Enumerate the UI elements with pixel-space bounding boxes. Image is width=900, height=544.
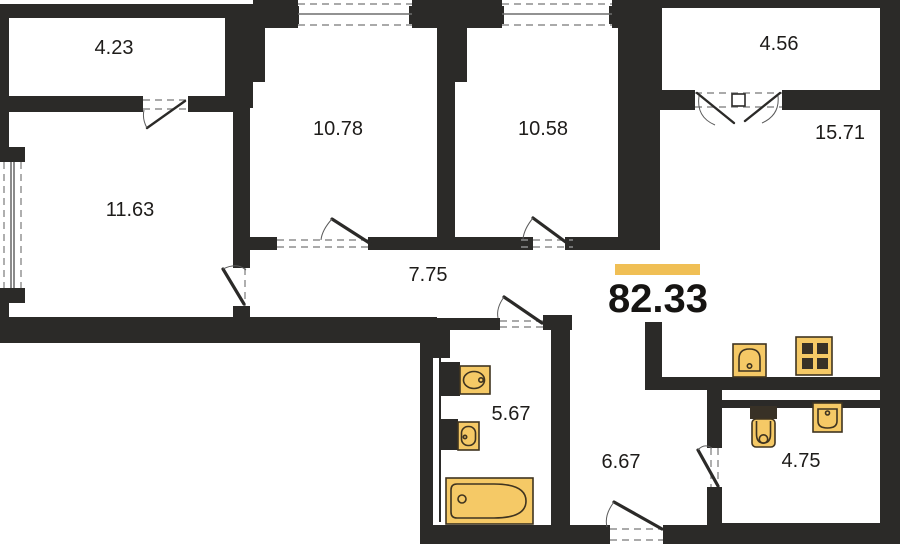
floor-plan-page: 4.23 10.78 10.58 4.56 15.71 11.63 7.75 5… <box>0 0 900 544</box>
label-balcony-right: 4.56 <box>760 33 799 55</box>
window-room-1 <box>298 4 412 25</box>
walls <box>0 0 900 544</box>
stove-icon <box>796 337 832 375</box>
label-room-2: 10.58 <box>518 118 568 140</box>
label-room-3: 11.63 <box>106 199 155 221</box>
total-area-value: 82.33 <box>608 277 708 321</box>
kitchen-sink <box>733 344 766 377</box>
total-area-block: 82.33 <box>608 264 708 321</box>
door-room-1 <box>277 219 371 247</box>
door-wc <box>698 446 718 487</box>
label-balcony-left: 4.23 <box>95 37 134 59</box>
label-kitchen-living: 15.71 <box>815 122 865 144</box>
window-room-3 <box>4 162 21 288</box>
total-area-highlight-bar <box>615 264 700 275</box>
label-wc: 4.75 <box>782 450 821 472</box>
door-room-3 <box>223 266 246 306</box>
wc-washbasin <box>813 403 842 432</box>
washbasin-large <box>460 366 490 394</box>
door-balcony-left <box>143 100 188 128</box>
label-room-1: 10.78 <box>313 118 363 140</box>
floor-plan: 4.23 10.78 10.58 4.56 15.71 11.63 7.75 5… <box>0 0 900 544</box>
washbasin-small <box>458 422 479 450</box>
french-door-balcony-right <box>695 93 782 125</box>
entrance-door <box>606 502 663 540</box>
label-corridor: 7.75 <box>409 264 448 286</box>
window-room-2 <box>502 4 612 25</box>
bathtub <box>446 478 533 524</box>
toilet <box>750 406 777 447</box>
door-bathroom <box>498 297 543 327</box>
label-bathroom: 5.67 <box>492 403 531 425</box>
label-hallway: 6.67 <box>602 451 641 473</box>
